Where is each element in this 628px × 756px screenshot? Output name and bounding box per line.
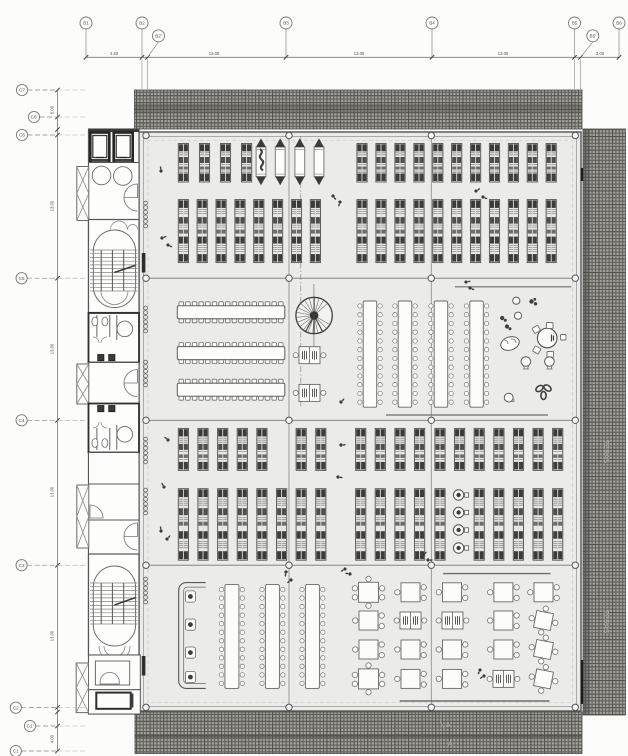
svg-text:C3: C3 xyxy=(19,563,25,568)
svg-text:13.00: 13.00 xyxy=(50,343,55,354)
svg-text:C6': C6' xyxy=(31,115,38,120)
svg-text:13.00: 13.00 xyxy=(50,486,55,497)
svg-text:C1: C1 xyxy=(13,749,19,754)
svg-text:B2': B2' xyxy=(155,33,162,38)
svg-text:4.00: 4.00 xyxy=(50,734,55,743)
svg-text:3.00: 3.00 xyxy=(596,51,605,56)
svg-text:TERAS: TERAS xyxy=(602,440,609,464)
svg-text:TERAS: TERAS xyxy=(602,610,609,634)
svg-text:B4: B4 xyxy=(429,21,435,26)
svg-text:B3: B3 xyxy=(283,21,289,26)
svg-text:A: A xyxy=(448,741,453,748)
svg-text:13.00: 13.00 xyxy=(50,630,55,641)
svg-text:C4: C4 xyxy=(19,418,25,423)
svg-text:13.00: 13.00 xyxy=(50,200,55,211)
svg-text:4.40: 4.40 xyxy=(110,51,119,56)
svg-text:╲ A: ╲ A xyxy=(439,720,451,729)
svg-text:13.00: 13.00 xyxy=(354,51,365,56)
svg-text:B5': B5' xyxy=(590,33,597,38)
svg-text:C5: C5 xyxy=(19,276,25,281)
svg-text:C7: C7 xyxy=(19,88,25,93)
svg-text:C6: C6 xyxy=(19,133,25,138)
svg-text:B5: B5 xyxy=(572,21,578,26)
svg-text:B1: B1 xyxy=(83,21,89,26)
svg-text:13.00: 13.00 xyxy=(498,51,509,56)
svg-text:5.00: 5.00 xyxy=(50,105,55,114)
svg-text:B6: B6 xyxy=(616,21,622,26)
svg-text:C1': C1' xyxy=(27,724,34,729)
svg-text:13.00: 13.00 xyxy=(209,51,220,56)
svg-text:C2: C2 xyxy=(13,705,19,710)
svg-text:B2: B2 xyxy=(139,21,145,26)
